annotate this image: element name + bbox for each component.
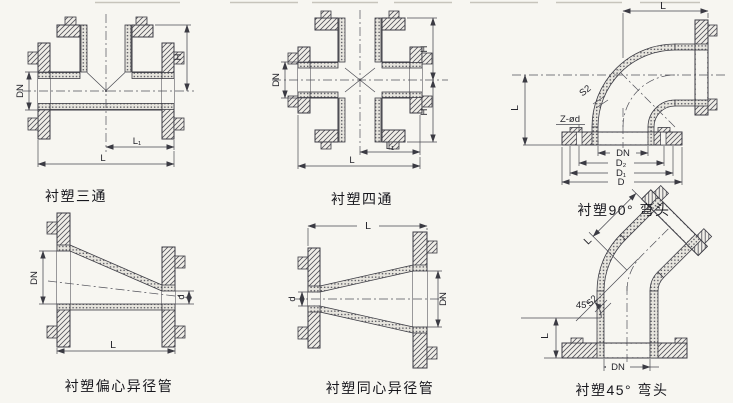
bolt-stud	[175, 256, 185, 268]
bolt-stud	[65, 17, 76, 25]
bolt-hole	[661, 132, 667, 145]
elbow-90-dim-z-od: Z-ød	[560, 114, 580, 125]
bolt-stud	[175, 326, 185, 338]
bolt-stud	[708, 25, 717, 36]
bolt-stud	[571, 338, 583, 343]
elbow-45-dim-dn: DN	[611, 362, 625, 373]
bolt-stud	[28, 52, 38, 64]
bolt-stud	[708, 99, 717, 110]
bolt-stud	[675, 338, 687, 343]
elbow-90-dimensions: L L S2 Z-ød DN D₂ D₁ D	[509, 0, 708, 188]
bolt-stud	[298, 257, 308, 269]
bolt-stud	[321, 142, 331, 149]
elbow-90-dim-s2: S2	[577, 83, 593, 99]
eccentric-dim-dn: DN	[29, 271, 40, 285]
bolt-stud	[422, 53, 432, 64]
bolt-hole	[577, 132, 583, 145]
cross-dim-dn: DN	[271, 73, 282, 87]
bolt-stud	[174, 118, 184, 130]
tee-dim-l1: L₁	[133, 136, 142, 147]
elbow-90-dim-d: D	[618, 177, 625, 188]
bolt-stud	[422, 96, 432, 107]
concentric-dim-l: L	[365, 220, 371, 232]
eccentric-dim-l: L	[110, 339, 116, 351]
elbow-45-dim-l-angled: L	[582, 234, 595, 247]
tee-dim-dn: DN	[15, 84, 26, 98]
cross-dim-l: L	[349, 155, 354, 166]
bolt-stud	[298, 327, 308, 339]
cross-dim-h-bottom: H	[419, 108, 430, 115]
cross-drawing: DN H H L₁ L	[271, 10, 448, 169]
elbow-90-dim-l-top: L	[660, 0, 666, 12]
bolt-stud	[47, 326, 57, 338]
elbow-90-drawing: L L S2 Z-ød DN D₂ D₁ D	[509, 0, 727, 188]
caption-elbow-45: 衬塑45° 弯头	[575, 380, 668, 400]
caption-tee: 衬塑三通	[45, 186, 107, 206]
caption-cross: 衬塑四通	[331, 189, 393, 209]
caption-eccentric-reducer: 衬塑偏心异径管	[65, 376, 174, 396]
caption-elbow-90: 衬塑90° 弯头	[577, 200, 670, 220]
tee-drawing: DN H L₁ L	[15, 14, 194, 167]
concentric-dim-d: d	[287, 296, 298, 301]
bolt-stud	[389, 11, 399, 18]
bolt-stud	[136, 17, 147, 25]
eccentric-dim-d: d	[176, 294, 187, 299]
eccentric-reducer-drawing: DN d L	[29, 213, 194, 354]
concentric-dim-dn: DN	[438, 292, 449, 306]
drawing-sheet: .ol{fill:none;stroke:#3b3b43;stroke-widt…	[0, 0, 733, 403]
bolt-stud	[570, 128, 582, 133]
concentric-reducer-drawing: d DN L	[287, 220, 449, 368]
bolt-stud	[47, 222, 57, 234]
centerline-arc	[627, 227, 670, 291]
caption-concentric-reducer: 衬塑同心异径管	[326, 378, 435, 398]
tee-dim-l: L	[100, 153, 105, 164]
cross-dim-l1: L₁	[386, 141, 395, 152]
bolt-stud	[321, 11, 331, 18]
bolt-stud	[658, 128, 670, 133]
tee-dim-h: H	[173, 53, 184, 60]
bolt-stud	[427, 241, 437, 253]
bolt-stud	[427, 347, 437, 359]
elbow-45-dim-l-left: L	[539, 333, 551, 339]
elbow-90-dim-l-left: L	[509, 105, 521, 111]
bolt-stud	[28, 118, 38, 130]
cross-dim-h-top: H	[419, 45, 430, 52]
